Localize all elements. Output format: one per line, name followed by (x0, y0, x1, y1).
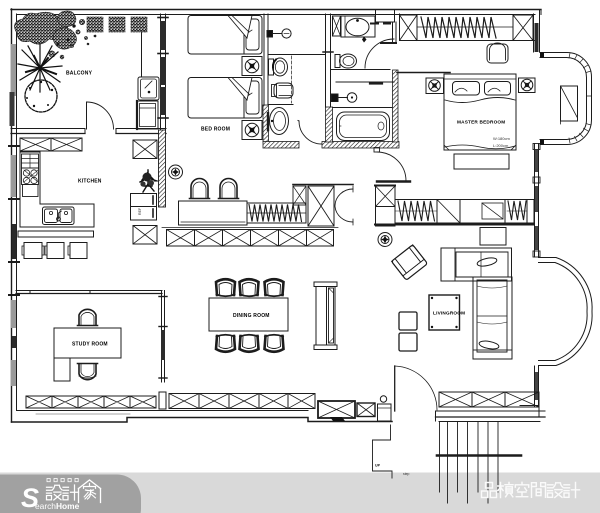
svg-text:STUDY ROOM: STUDY ROOM (72, 342, 108, 348)
svg-text:MASTER BEDROOM: MASTER BEDROOM (457, 120, 505, 125)
svg-text:REF: REF (138, 207, 142, 215)
svg-text:earchHome: earchHome (35, 501, 80, 511)
svg-text:L:200cm: L:200cm (493, 143, 509, 148)
svg-text:KITCHEN: KITCHEN (78, 179, 102, 185)
svg-text:UP: UP (375, 464, 381, 468)
svg-text:DINING ROOM: DINING ROOM (233, 313, 270, 319)
svg-text:W:180cm: W:180cm (493, 136, 510, 141)
svg-text:BED ROOM: BED ROOM (201, 127, 230, 133)
svg-text:step: step (403, 472, 410, 476)
svg-text:LIVINGROOM: LIVINGROOM (433, 311, 465, 316)
svg-text:BALCONY: BALCONY (66, 71, 93, 77)
